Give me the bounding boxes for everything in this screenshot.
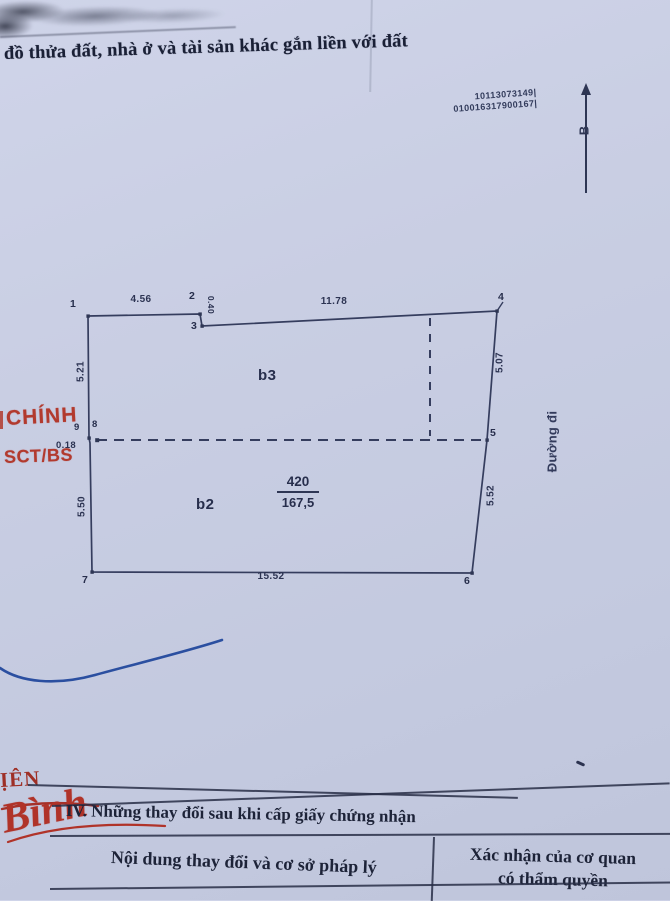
- road-label: Đường đi: [545, 397, 560, 487]
- point-label-5: 5: [490, 427, 496, 439]
- dim-notch: 0.40: [206, 290, 216, 320]
- point-label-8: 8: [92, 419, 97, 430]
- table-header-left: Nội dung thay đổi và cơ sở pháp lý: [58, 845, 431, 880]
- table-header-right-line2: có thẩm quyền: [440, 866, 666, 893]
- table-header-right-line1: Xác nhận của cơ quan: [440, 843, 666, 870]
- point-label-3: 3: [191, 320, 197, 332]
- parcel-area: 167,5: [272, 495, 324, 510]
- fraction-bar: [277, 491, 319, 493]
- parcel-number: 420: [272, 474, 324, 489]
- document-code-block: 10113073149| 010016317900167|: [394, 87, 537, 119]
- dim-right-upper: 5.07: [495, 348, 506, 378]
- pen-stroke: [0, 630, 240, 700]
- point-label-9: 9: [74, 422, 79, 433]
- ink-smudge: [576, 760, 585, 766]
- point-label-7: 7: [82, 574, 88, 586]
- stamp-cut-fragment: [0, 411, 3, 429]
- parcel-fraction: 420 167,5: [272, 474, 324, 510]
- parcel-diagram: [55, 285, 525, 595]
- dim-step: 0.18: [56, 440, 76, 451]
- dim-right-lower: 5.52: [486, 481, 497, 511]
- point-label-2: 2: [189, 290, 195, 302]
- point-label-6: 6: [464, 575, 470, 587]
- dim-top-left: 4.56: [118, 294, 164, 305]
- north-label: B: [577, 121, 592, 141]
- north-arrow-line: [585, 93, 587, 193]
- dim-top-right: 11.78: [310, 296, 358, 307]
- parcel-boundary: [88, 311, 497, 573]
- zone-label-b3: b3: [258, 367, 277, 384]
- table-column-divider: [431, 837, 435, 901]
- dim-left-upper: 5.21: [76, 357, 87, 387]
- point-label-4: 4: [498, 291, 504, 303]
- dim-left-lower: 5.50: [77, 492, 88, 522]
- pen-stroke-path: [0, 640, 222, 681]
- vertex-markers: [86, 309, 498, 574]
- dim-bottom: 15.52: [246, 571, 296, 582]
- zone-label-b2: b2: [196, 496, 215, 513]
- point-label-1: 1: [70, 298, 76, 310]
